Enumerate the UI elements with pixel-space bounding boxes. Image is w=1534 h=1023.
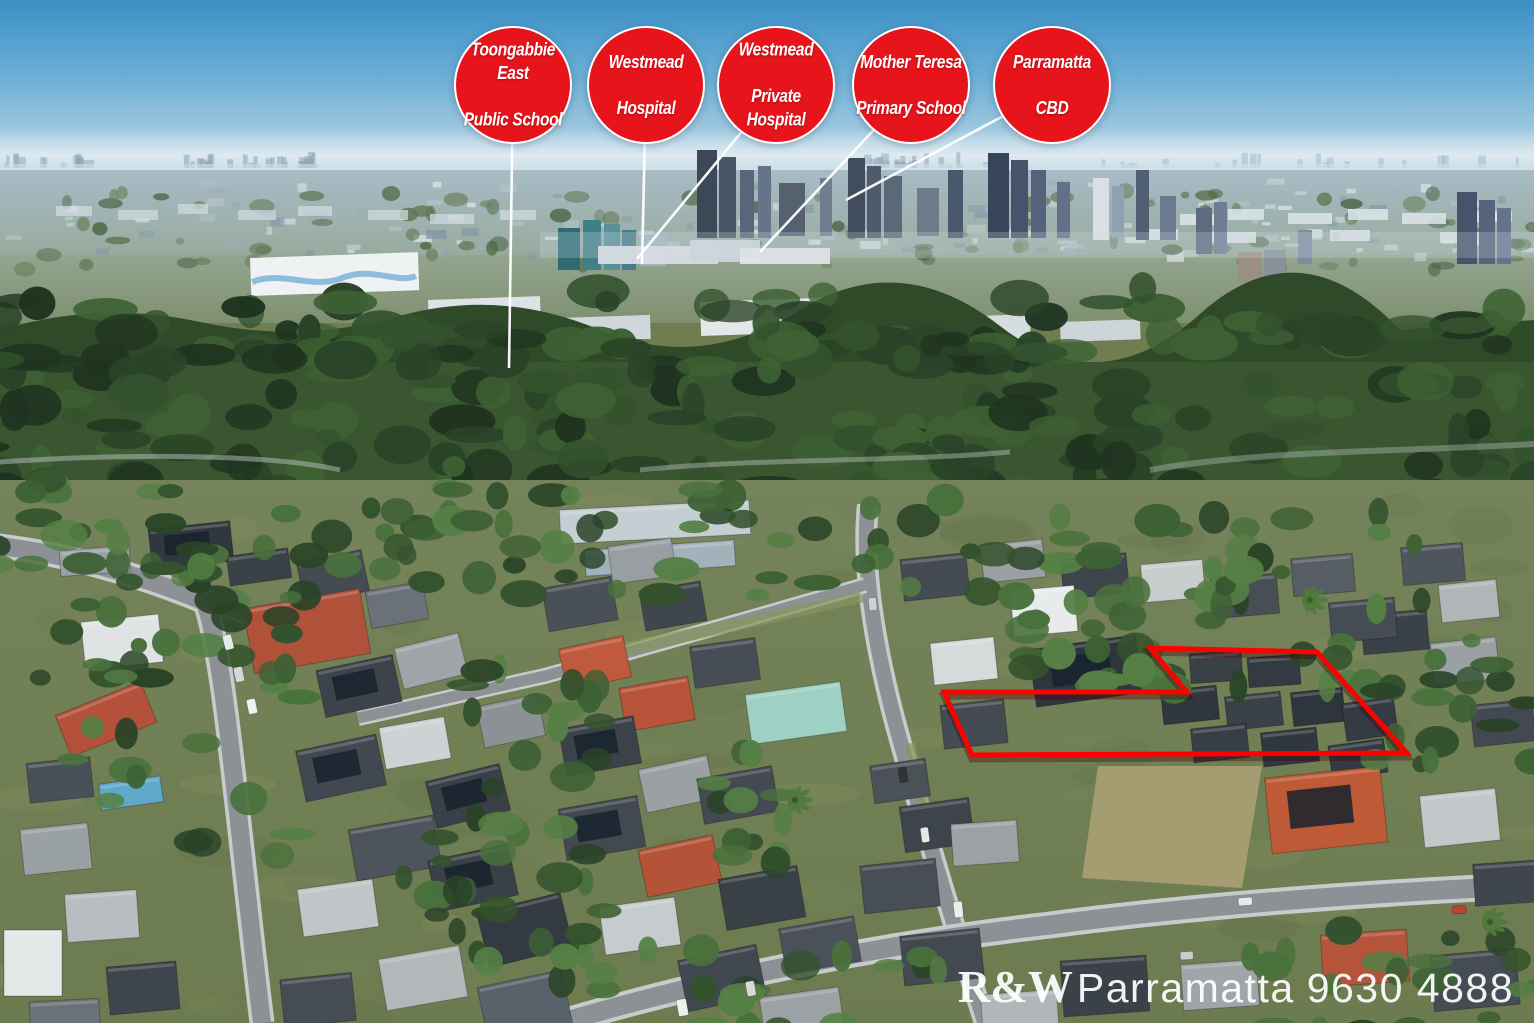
agency-watermark: R&W Parramatta9630 4888 xyxy=(958,961,1514,1013)
aerial-scene-svg xyxy=(0,0,1534,1023)
badge-label-line2: Public School xyxy=(464,109,563,130)
badge-label-line2: CBD xyxy=(1036,98,1069,119)
agency-phone: 9630 4888 xyxy=(1307,965,1514,1011)
badge-label-line1: Mother Teresa xyxy=(860,51,961,72)
badge-label-line2: Primary School xyxy=(856,98,966,119)
vacant-lot xyxy=(1082,766,1262,888)
badge-label-line1: Parramatta xyxy=(1013,51,1091,72)
badge-label-line2: Hospital xyxy=(617,98,676,119)
badge-label-line1: Westmead xyxy=(609,51,684,72)
location-badge-parramatta-cbd: Parramatta CBD xyxy=(993,26,1111,144)
badge-label-line2: Private Hospital xyxy=(747,86,806,130)
badge-label-line1: Toongabbie East xyxy=(471,40,555,84)
agency-logo-text: R&W xyxy=(958,961,1073,1013)
aerial-photo: Toongabbie East Public School Westmead H… xyxy=(0,0,1534,1023)
badge-label-line1: Westmead xyxy=(739,40,814,61)
location-badge-mother-teresa-primary-school: Mother Teresa Primary School xyxy=(852,26,970,144)
location-badge-toongabbie-east-public-school: Toongabbie East Public School xyxy=(454,26,572,144)
location-badge-westmead-private-hospital: Westmead Private Hospital xyxy=(717,26,835,144)
agency-office: Parramatta xyxy=(1077,965,1295,1011)
location-badge-westmead-hospital: Westmead Hospital xyxy=(587,26,705,144)
